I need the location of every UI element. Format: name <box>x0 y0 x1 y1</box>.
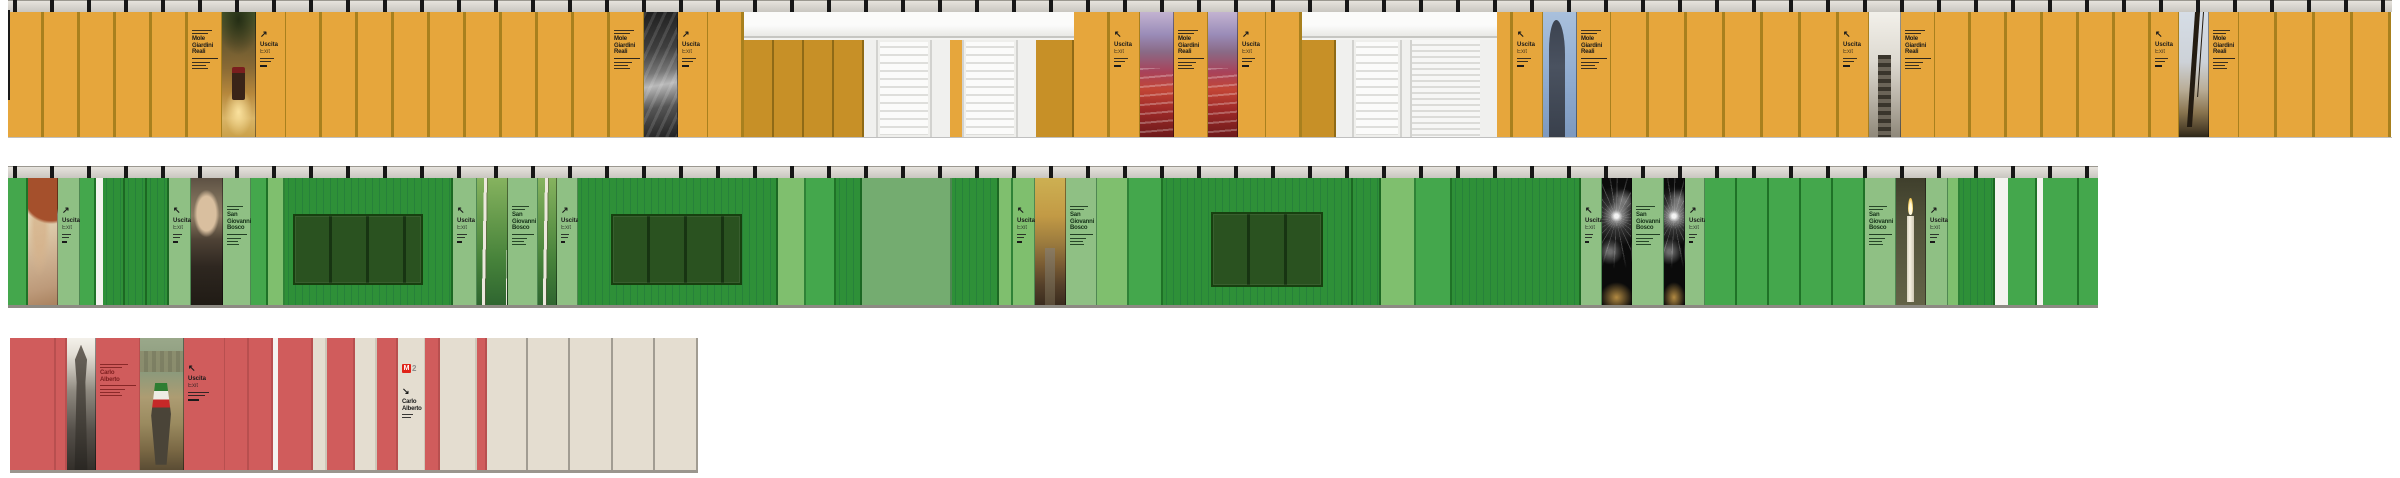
hoarding-panel <box>10 338 56 470</box>
exit-label-italian: Uscita <box>1017 218 1031 225</box>
exit-sign: ↗UscitaExit <box>678 12 708 137</box>
hoarding-panel <box>377 338 398 470</box>
sign-title-line: Bosco <box>1070 225 1093 232</box>
exit-number-mark <box>260 65 267 67</box>
hanging-rail <box>8 0 2392 12</box>
exit-label-english: Exit <box>173 225 187 232</box>
sign-title-line: San <box>227 212 247 219</box>
exit-label-italian: Uscita <box>1930 218 1944 225</box>
hoarding-panel <box>2315 12 2353 137</box>
sign-title-line: Bosco <box>1636 225 1660 232</box>
autumn-park-path-photo <box>1035 178 1066 305</box>
exit-label-italian: Uscita <box>188 376 221 383</box>
exit-label-italian: Uscita <box>561 218 574 225</box>
sign-rule <box>1636 234 1660 235</box>
micro-text-line <box>1070 209 1084 210</box>
exit-sign: ↗UscitaExit <box>58 178 80 305</box>
metro-sign: M2↘CarloAlberto <box>398 338 425 470</box>
hoarding-panel <box>286 12 322 137</box>
metro-logo: M2 <box>402 364 421 373</box>
hoarding-panel <box>8 12 44 137</box>
micro-text-line <box>192 62 210 63</box>
hoarding-panel <box>1129 178 1163 305</box>
exit-arrow-icon: ↖ <box>2155 30 2175 39</box>
micro-text-line <box>1636 241 1649 242</box>
exit-sign: ↖UscitaExit <box>184 338 225 470</box>
micro-text-line <box>2213 30 2230 31</box>
sign-title: MoleGiardiniReali <box>1581 36 1607 56</box>
micro-text-line <box>1636 238 1653 239</box>
hoarding-panel <box>655 338 698 470</box>
birch-forest-photo <box>538 178 557 305</box>
hoarding-panel <box>2007 12 2043 137</box>
exit-sign: ↖UscitaExit <box>453 178 477 305</box>
sign-title: MoleGiardiniReali <box>1178 36 1204 56</box>
building-facade <box>1302 12 1497 137</box>
exit-label-english: Exit <box>1930 225 1944 232</box>
metro-line-number: 2 <box>412 364 416 373</box>
sign-title-line: Carlo <box>100 370 136 377</box>
hoarding-panel <box>1801 178 1833 305</box>
hoarding-panel <box>44 12 80 137</box>
sign-title-line: Reali <box>1178 49 1204 56</box>
sign-title: MoleGiardiniReali <box>614 36 640 56</box>
exit-number-mark <box>1517 65 1524 67</box>
sign-title-line: Mole <box>1905 36 1931 43</box>
candle-photo <box>1896 178 1926 305</box>
sign-title: SanGiovanniBosco <box>512 212 534 232</box>
exit-label-italian: Uscita <box>260 42 282 49</box>
panel-gap <box>1995 178 2008 305</box>
sign-title-line: Reali <box>2213 49 2235 56</box>
hoarding-panel <box>466 12 502 137</box>
exit-number-mark <box>1843 65 1850 67</box>
hoarding-panel <box>8 178 28 305</box>
exit-label-english: Exit <box>188 383 221 390</box>
micro-text-line <box>614 68 630 69</box>
hoarding-panel <box>80 12 116 137</box>
hoarding-panel <box>613 338 655 470</box>
park-carriage-photo <box>222 12 256 137</box>
sign-rule <box>614 58 640 59</box>
exit-sign: ↖UscitaExit <box>2151 12 2179 137</box>
micro-text-line <box>1869 244 1883 245</box>
hoarding-panel <box>251 178 268 305</box>
hoarding-panel <box>322 12 358 137</box>
exit-sign: ↗UscitaExit <box>1926 178 1948 305</box>
hoarding-panel <box>1353 178 1381 305</box>
sign-title-line: Reali <box>1905 49 1931 56</box>
sign-title: SanGiovanniBosco <box>1636 212 1660 232</box>
micro-text-line <box>2213 33 2226 34</box>
hoarding-panel <box>1960 178 1995 305</box>
micro-text-line <box>1070 206 1088 207</box>
facade-wall <box>1480 40 1497 137</box>
exit-label-english: Exit <box>561 225 574 232</box>
ochre-panel <box>1036 40 1074 137</box>
micro-text-line <box>457 234 467 235</box>
micro-text-line <box>1636 206 1655 207</box>
exit-label-english: Exit <box>457 225 473 232</box>
hoarding-panel <box>1935 12 1971 137</box>
hoarding-panel <box>358 12 394 137</box>
exit-label-italian: Uscita <box>682 42 704 49</box>
micro-text-line <box>614 33 630 34</box>
micro-text-line <box>1178 33 1194 34</box>
exit-number-mark <box>1114 65 1121 67</box>
micro-text-line <box>1581 68 1597 69</box>
hoarding-panel <box>327 338 355 470</box>
building-facade <box>744 12 1074 137</box>
hoarding-panel <box>952 178 999 305</box>
sign-title-line: Giovanni <box>512 219 534 226</box>
micro-text-line <box>1636 244 1651 245</box>
sign-title-line: Mole <box>192 36 218 43</box>
hoarding-panel <box>1687 12 1725 137</box>
exit-arrow-icon: ↗ <box>260 30 282 39</box>
sign-rule <box>1581 58 1607 59</box>
hoarding-panel <box>268 178 285 305</box>
exit-arrow-icon: ↖ <box>188 364 221 373</box>
theatre-red-seats-photo <box>1208 12 1238 137</box>
exit-sign: ↖UscitaExit <box>1581 178 1602 305</box>
yellow-panel <box>950 40 962 137</box>
hoarding-panel <box>1611 12 1649 137</box>
exit-label-italian: Uscita <box>1585 218 1598 225</box>
hoarding-panel <box>1452 178 1581 305</box>
hoarding-panel <box>103 178 125 305</box>
statue-against-sky-photo <box>1543 12 1577 137</box>
hoarding-panel <box>1725 12 1763 137</box>
sign-title: CarloAlberto <box>100 370 136 383</box>
exit-number-mark <box>188 399 199 401</box>
panel-strip-green: ↗UscitaExit↖UscitaExitSanGiovanniBosco↖U… <box>8 178 2098 308</box>
micro-text-line <box>1843 61 1854 62</box>
louver-door <box>1352 40 1402 137</box>
micro-text-line <box>1689 234 1697 235</box>
micro-text-line <box>1242 58 1255 59</box>
hoarding-panel <box>2043 12 2079 137</box>
hoarding-panel <box>862 178 952 305</box>
micro-text-line <box>1930 234 1939 235</box>
exit-label-english: Exit <box>1017 225 1031 232</box>
fireworks-night-photo <box>1602 178 1632 305</box>
micro-text-line <box>1585 237 1592 238</box>
micro-text-line <box>227 244 239 245</box>
metro-m-icon: M <box>402 364 411 373</box>
elevation-row-red: CarloAlberto↖UscitaExitM2↘CarloAlberto <box>10 338 698 473</box>
ochre-panel <box>834 40 864 137</box>
elevation-board: MoleGiardiniReali↗UscitaExitMoleGiardini… <box>0 0 2400 478</box>
display-window <box>611 214 742 285</box>
facade-wall <box>932 40 950 137</box>
micro-text-line <box>192 33 208 34</box>
exit-label-english: Exit <box>1114 49 1136 56</box>
exit-label-english: Exit <box>62 225 76 232</box>
exit-sign: ↖UscitaExit <box>169 178 191 305</box>
elevation-row-green: ↗UscitaExit↖UscitaExitSanGiovanniBosco↖U… <box>8 166 2098 308</box>
hoarding-panel <box>1948 178 1960 305</box>
micro-text-line <box>173 234 182 235</box>
display-window-panel <box>285 178 453 305</box>
exit-arrow-icon: ↖ <box>173 206 187 215</box>
micro-text-line <box>1114 58 1128 59</box>
hoarding-panel <box>1763 12 1801 137</box>
sign-title-line: Giovanni <box>227 219 247 226</box>
hoarding-panel <box>1769 178 1801 305</box>
exit-arrow-icon: ↗ <box>1689 206 1701 215</box>
sign-title: SanGiovanniBosco <box>1869 212 1892 232</box>
hoarding-panel <box>1381 178 1416 305</box>
exit-number-mark <box>1017 241 1022 243</box>
micro-text-line <box>402 417 411 418</box>
micro-text-line <box>2213 62 2228 63</box>
sign-title-line: San <box>1070 212 1093 219</box>
micro-text-line <box>614 62 632 63</box>
hoarding-panel <box>440 338 477 470</box>
sign-rule <box>192 58 218 59</box>
exit-number-mark <box>1689 241 1693 243</box>
hoarding-panel <box>999 178 1013 305</box>
micro-text-line <box>512 209 525 210</box>
micro-text-line <box>1581 65 1595 66</box>
hoarding-panel <box>836 178 862 305</box>
direction-sign: SanGiovanniBosco <box>1865 178 1896 305</box>
hoarding-panel <box>394 12 430 137</box>
hoarding-panel <box>249 338 273 470</box>
hoarding-panel <box>2079 178 2098 305</box>
micro-text-line <box>614 65 628 66</box>
sign-rule <box>227 234 247 235</box>
hoarding-panel <box>778 178 806 305</box>
sign-title-line: Reali <box>614 49 640 56</box>
ochre-panel <box>1302 40 1336 137</box>
sign-rule <box>1178 58 1204 59</box>
micro-text-line <box>260 58 274 59</box>
hoarding-panel <box>1705 178 1737 305</box>
exit-label-italian: Uscita <box>1689 218 1701 225</box>
exit-label-italian: Uscita <box>1843 42 1865 49</box>
micro-text-line <box>1869 241 1882 242</box>
micro-text-line <box>1905 33 1921 34</box>
exit-number-mark <box>561 241 565 243</box>
hoarding-panel <box>2277 12 2315 137</box>
sign-title: CarloAlberto <box>402 399 421 412</box>
hoarding-panel <box>574 12 610 137</box>
hoarding-panel <box>2239 12 2277 137</box>
sign-title-line: San <box>512 212 534 219</box>
hoarding-panel <box>430 12 466 137</box>
facade-lintel <box>744 12 1074 38</box>
micro-text-line <box>1636 209 1650 210</box>
sign-rule <box>1070 234 1093 235</box>
hoarding-panel <box>425 338 440 470</box>
exit-arrow-icon: ↖ <box>1843 30 1865 39</box>
sign-title-line: San <box>1869 212 1892 219</box>
exit-number-mark <box>1930 241 1935 243</box>
exit-number-mark <box>1585 241 1589 243</box>
micro-text-line <box>192 30 212 31</box>
sign-title-line: Mole <box>1178 36 1204 43</box>
exit-label-italian: Uscita <box>1114 42 1136 49</box>
hoarding-panel <box>313 338 327 470</box>
panel-gap <box>96 178 103 305</box>
micro-text-line <box>682 61 693 62</box>
exit-label-english: Exit <box>260 49 282 56</box>
hoarding-panel <box>570 338 613 470</box>
micro-text-line <box>1070 244 1084 245</box>
micro-text-line <box>62 237 69 238</box>
risorgimento-painting-photo <box>140 338 184 470</box>
sign-title-line: Bosco <box>512 225 534 232</box>
micro-text-line <box>1843 58 1857 59</box>
micro-text-line <box>1905 68 1921 69</box>
exit-arrow-icon: ↗ <box>561 206 574 215</box>
micro-text-line <box>173 237 180 238</box>
hoarding-panel <box>477 338 487 470</box>
hoarding-panel <box>1097 178 1129 305</box>
micro-text-line <box>512 206 529 207</box>
micro-text-line <box>1585 234 1593 235</box>
sign-title-line: San <box>1636 212 1660 219</box>
sign-rule <box>1869 234 1892 235</box>
micro-text-line <box>1869 209 1883 210</box>
exit-label-english: Exit <box>1843 49 1865 56</box>
micro-text-line <box>188 395 205 396</box>
sign-title-line: Mole <box>2213 36 2235 43</box>
hoarding-panel <box>125 178 147 305</box>
exit-arrow-icon: ↗ <box>1930 206 1944 215</box>
exit-label-english: Exit <box>682 49 704 56</box>
micro-text-line <box>100 395 122 396</box>
direction-sign: MoleGiardiniReali <box>1901 12 1935 137</box>
micro-text-line <box>1905 65 1919 66</box>
elevation-row-yellow: MoleGiardiniReali↗UscitaExitMoleGiardini… <box>8 0 2392 138</box>
sign-title-line: Bosco <box>227 225 247 232</box>
micro-text-line <box>100 364 128 365</box>
hoarding-panel <box>1649 12 1687 137</box>
sign-title-line: Mole <box>614 36 640 43</box>
micro-text-line <box>512 241 524 242</box>
micro-text-line <box>1242 61 1252 62</box>
hoarding-panel <box>278 338 313 470</box>
display-window-panel <box>578 178 778 305</box>
don-bosco-portrait-photo <box>191 178 223 305</box>
micro-text-line <box>2213 65 2225 66</box>
sculpture-bw-photo <box>644 12 678 137</box>
sign-rule <box>100 385 136 386</box>
hoarding-panel <box>2008 178 2037 305</box>
direction-sign: SanGiovanniBosco <box>223 178 251 305</box>
hoarding-panel <box>1971 12 2007 137</box>
hoarding-panel <box>538 12 574 137</box>
ochre-panel <box>774 40 804 137</box>
sign-title-line: Alberto <box>402 406 421 413</box>
hoarding-panel <box>1266 12 1302 137</box>
sign-title-line: Alberto <box>100 377 136 384</box>
ochre-panel <box>744 40 774 137</box>
exit-arrow-icon: ↖ <box>1517 30 1539 39</box>
sign-title: MoleGiardiniReali <box>1905 36 1931 56</box>
hoarding-panel <box>147 178 169 305</box>
hoarding-panel <box>152 12 188 137</box>
micro-text-line <box>561 237 568 238</box>
facade-openings <box>1302 40 1497 137</box>
exit-label-italian: Uscita <box>1517 42 1539 49</box>
display-window-panel <box>1163 178 1353 305</box>
micro-text-line <box>1869 206 1887 207</box>
exit-sign: ↖UscitaExit <box>1110 12 1140 137</box>
micro-text-line <box>192 68 208 69</box>
micro-text-line <box>1581 62 1599 63</box>
egyptian-statue-bw-photo <box>67 338 96 470</box>
facade-openings <box>744 40 1074 137</box>
exit-label-italian: Uscita <box>457 218 473 225</box>
exit-arrow-icon: ↖ <box>457 206 473 215</box>
fresco-angel-photo <box>28 178 58 305</box>
hoarding-panel <box>2115 12 2151 137</box>
micro-text-line <box>1017 234 1026 235</box>
sign-title-line: Reali <box>192 49 218 56</box>
sign-title: MoleGiardiniReali <box>192 36 218 56</box>
exit-sign: ↗UscitaExit <box>1685 178 1705 305</box>
direction-sign: MoleGiardiniReali <box>2209 12 2239 137</box>
exit-sign: ↖UscitaExit <box>1513 12 1543 137</box>
micro-text-line <box>1905 30 1925 31</box>
louver-door <box>962 40 1018 137</box>
micro-text-line <box>1178 68 1194 69</box>
exit-label-english: Exit <box>1517 49 1539 56</box>
micro-text-line <box>100 367 122 368</box>
exit-number-mark <box>2155 65 2162 67</box>
hoarding-panel <box>1801 12 1839 137</box>
hoarding-panel <box>225 338 249 470</box>
hoarding-panel <box>1497 12 1513 137</box>
sign-title: MoleGiardiniReali <box>2213 36 2235 56</box>
exit-number-mark <box>173 241 178 243</box>
sign-rule <box>1905 58 1931 59</box>
exit-arrow-icon: ↗ <box>682 30 704 39</box>
hoarding-panel <box>502 12 538 137</box>
direction-arrow-icon: ↘ <box>402 387 421 396</box>
hoarding-panel <box>806 178 836 305</box>
sign-title-line: Giovanni <box>1070 219 1093 226</box>
edge-post <box>8 10 10 100</box>
micro-text-line <box>614 30 634 31</box>
exit-label-italian: Uscita <box>1242 42 1262 49</box>
hoarding-panel <box>2353 12 2391 137</box>
sign-title-line: Bosco <box>1869 225 1892 232</box>
sign-title-line: Giardini <box>1905 43 1931 50</box>
exit-label-italian: Uscita <box>173 218 187 225</box>
micro-text-line <box>227 238 241 239</box>
hoarding-panel <box>1737 178 1769 305</box>
exit-sign: ↖UscitaExit <box>1839 12 1869 137</box>
exit-arrow-icon: ↖ <box>1017 206 1031 215</box>
direction-sign: MoleGiardiniReali <box>1174 12 1208 137</box>
direction-sign: SanGiovanniBosco <box>1632 178 1664 305</box>
exit-arrow-icon: ↖ <box>1585 206 1598 215</box>
direction-sign: MoleGiardiniReali <box>610 12 644 137</box>
sign-title-line: Giardini <box>614 43 640 50</box>
hoarding-panel <box>80 178 96 305</box>
exit-label-english: Exit <box>1585 225 1598 232</box>
exit-number-mark <box>457 241 462 243</box>
sign-title-line: Giardini <box>1581 43 1607 50</box>
exit-sign: ↗UscitaExit <box>256 12 286 137</box>
hoarding-panel <box>2079 12 2115 137</box>
birch-forest-photo <box>477 178 508 305</box>
